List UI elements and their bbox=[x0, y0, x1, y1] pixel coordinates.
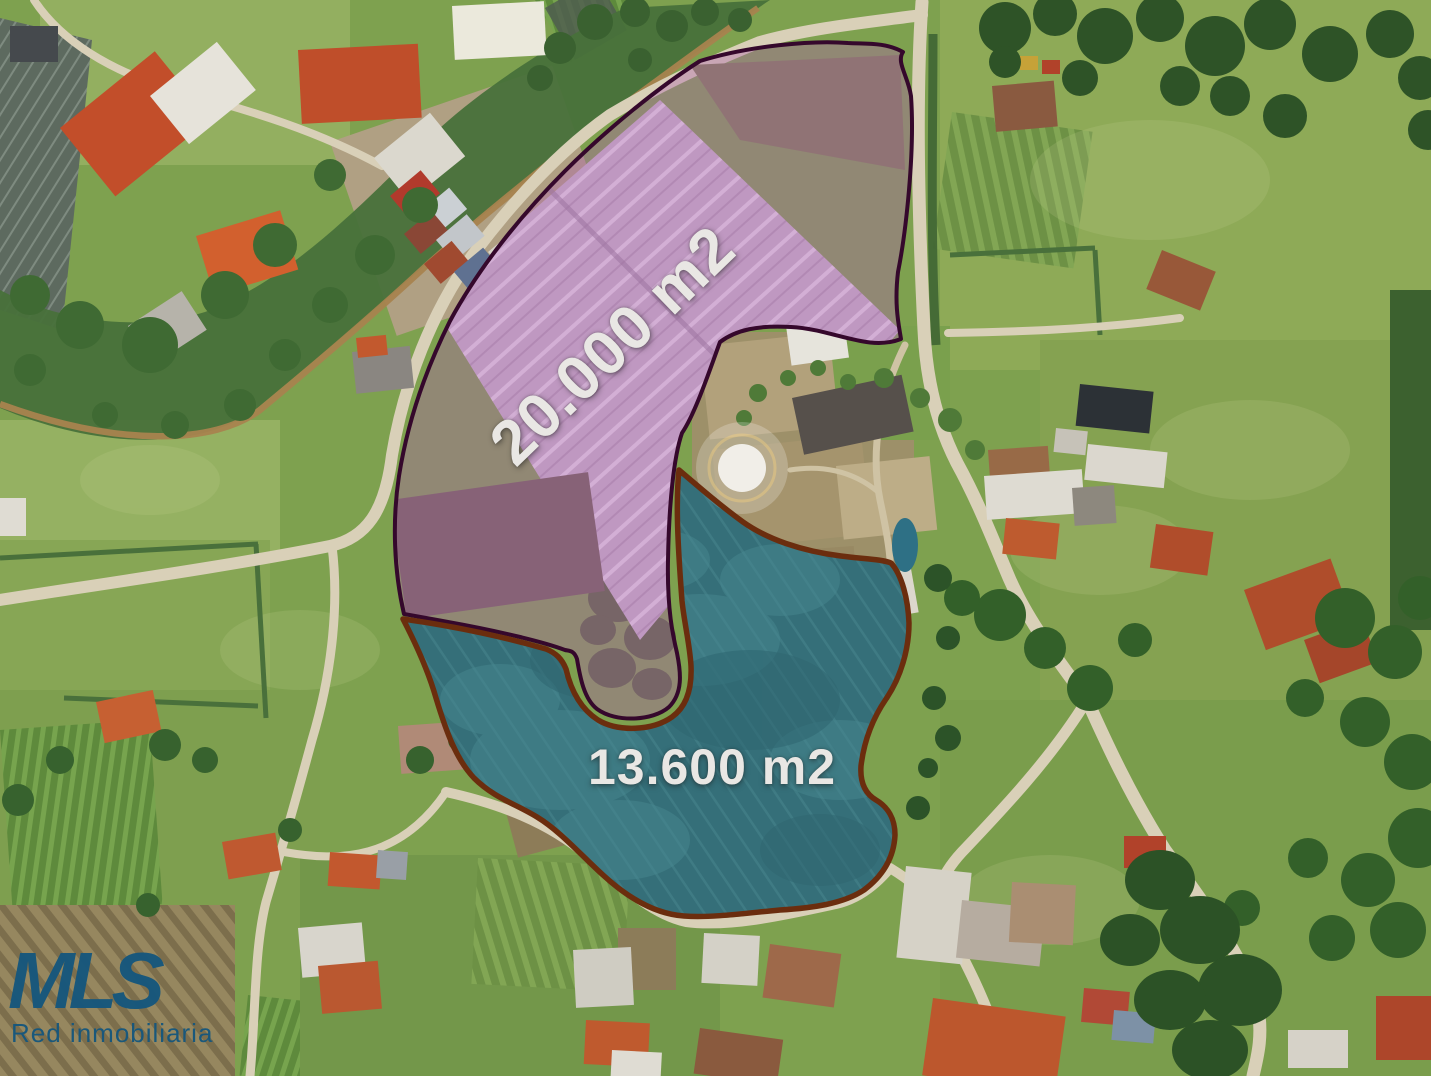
pond bbox=[892, 518, 918, 572]
agency-logo-title: MLS bbox=[8, 944, 213, 1018]
aerial-listing-image: 20.000 m2 13.600 m2 MLS Red inmobiliaria bbox=[0, 0, 1431, 1076]
agency-logo-subtitle: Red inmobiliaria bbox=[11, 1018, 213, 1049]
aerial-photo-background bbox=[0, 0, 1431, 1076]
parcel-13600-label: 13.600 m2 bbox=[588, 742, 836, 792]
agency-logo: MLS Red inmobiliaria bbox=[8, 944, 213, 1049]
